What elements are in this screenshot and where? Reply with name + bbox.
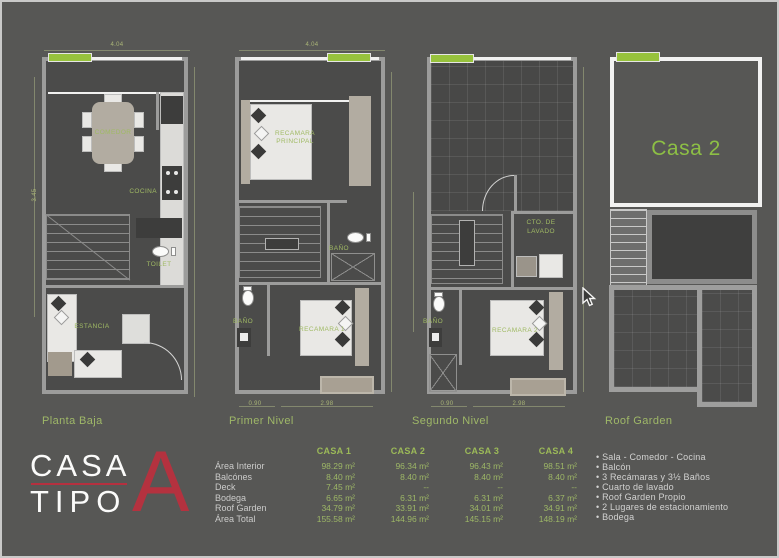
plan-primer-nivel: 4.04 RECAMARA PRINCIPAL BAÑO BAÑO: [227, 42, 395, 414]
interior-wall: [511, 211, 514, 287]
toilet-icon: [433, 296, 445, 312]
row-label: Área Interior: [215, 461, 305, 472]
table-cell: 145.15 m²: [453, 514, 527, 525]
open-roof-outline: Casa 2: [610, 57, 762, 207]
table-cell: --: [379, 482, 453, 493]
column-header: CASA 3: [453, 446, 527, 461]
staircase: [610, 209, 647, 287]
table-cell: 96.34 m²: [379, 461, 453, 472]
room-label-bano: BAÑO: [319, 245, 359, 253]
interior-wall: [156, 92, 159, 130]
logo-word-tipo: TIPO: [30, 486, 230, 517]
toilet-icon: [152, 246, 169, 257]
room-label-bano: BAÑO: [233, 318, 269, 326]
plan-roof-garden: Casa 2: [600, 42, 770, 414]
feature-item: Balcón: [596, 462, 728, 472]
roof-slab: [647, 210, 757, 284]
balcony-marker: [48, 53, 92, 62]
table-cell: 34.91 m²: [527, 503, 601, 514]
interior-wall: [511, 211, 577, 214]
dryer: [539, 254, 563, 278]
table-cell: --: [453, 482, 527, 493]
shower: [429, 354, 457, 392]
stair-rail: [459, 220, 475, 266]
toilet-tank: [434, 292, 443, 297]
plan-title-roof-garden: Roof Garden: [605, 415, 672, 427]
row-label: Roof Garden: [215, 503, 305, 514]
table-cell: 8.40 m²: [453, 472, 527, 483]
balcony-marker: [616, 52, 660, 62]
room-label-toilet: TOILET: [136, 261, 182, 269]
dimension-label: 0.90: [425, 401, 469, 407]
table-cell: 34.01 m²: [453, 503, 527, 514]
table-cell: 8.40 m²: [527, 472, 601, 483]
plan-segundo-nivel: CTO. DE LAVADO BAÑO RECAMARA 2 0.90 2.98: [419, 42, 587, 414]
row-label: Deck: [215, 482, 305, 493]
dimension-label: 0.90: [233, 401, 277, 407]
balcony-marker: [327, 53, 371, 62]
area-table: CASA 1 CASA 2 CASA 3 CASA 4 Área Interio…: [215, 446, 601, 524]
dimension-label: 2.98: [473, 401, 565, 407]
column-header: CASA 1: [305, 446, 379, 461]
dimension-label: 2.98: [281, 401, 373, 407]
dimension-label: 3.45: [32, 183, 38, 207]
toilet-icon: [242, 290, 254, 306]
interior-wall: [459, 287, 462, 365]
sofa: [74, 350, 122, 378]
table-cell: 98.51 m²: [527, 461, 601, 472]
room-label-estancia: ESTANCIA: [64, 323, 120, 331]
column-header: CASA 2: [379, 446, 453, 461]
roof-garden-deck-extension: [697, 285, 757, 407]
headboard: [549, 292, 563, 370]
headboard: [241, 100, 250, 184]
column-header: CASA 4: [527, 446, 601, 461]
room-label-recamara2: RECAMARA 2: [479, 327, 551, 335]
row-label: Balcónes: [215, 472, 305, 483]
toilet-tank: [243, 286, 252, 291]
table-cell: 6.31 m²: [453, 493, 527, 504]
table-cell: 155.58 m²: [305, 514, 379, 525]
row-label: Bodega: [215, 493, 305, 504]
mouse-cursor: [582, 287, 597, 308]
dimension-line: [194, 67, 195, 397]
dimension-line: [44, 50, 190, 51]
dimension-label: 4.04: [44, 42, 190, 48]
table-cell: 6.31 m²: [379, 493, 453, 504]
room-label-bano: BAÑO: [423, 318, 459, 326]
dimension-line: [583, 67, 584, 392]
chair: [134, 136, 144, 152]
feature-item: Bodega: [596, 512, 728, 522]
sink-basin: [432, 333, 439, 341]
chair: [134, 112, 144, 128]
table-cell: 8.40 m²: [379, 472, 453, 483]
table-cell: 148.19 m²: [527, 514, 601, 525]
table-cell: 7.45 m²: [305, 482, 379, 493]
dimension-line: [413, 192, 414, 332]
dimension-line: [391, 72, 392, 392]
plan-title-segundo-nivel: Segundo Nivel: [412, 415, 489, 427]
balcony-floor: [510, 378, 566, 396]
interior-wall: [327, 200, 330, 282]
chair: [82, 112, 92, 128]
toilet-tank: [366, 233, 371, 242]
logo: CASA TIPO A: [30, 450, 230, 550]
table-cell: 33.91 m²: [379, 503, 453, 514]
interior-wall: [241, 100, 363, 102]
burner: [166, 190, 170, 194]
room-label-cto-lavado: CTO. DE LAVADO: [515, 218, 567, 236]
feature-item: Cuarto de lavado: [596, 482, 728, 492]
table-cell: 98.29 m²: [305, 461, 379, 472]
stove: [162, 166, 182, 200]
table-cell: 96.43 m²: [453, 461, 527, 472]
burner: [174, 171, 178, 175]
floorplan-sheet: 4.04 3.45 COMEDOR COCINA TOIL: [0, 0, 779, 558]
refrigerator: [161, 96, 183, 124]
room-label-recamara1: RECAMARA 1: [287, 326, 357, 334]
rug: [48, 352, 72, 376]
interior-wall: [235, 200, 347, 203]
burner: [166, 171, 170, 175]
room-label-recamara-principal: RECAMARA PRINCIPAL: [263, 130, 327, 146]
table-cell: 8.40 m²: [305, 472, 379, 483]
feature-item: 2 Lugares de estacionamiento: [596, 502, 728, 512]
logo-word-casa: CASA: [30, 450, 230, 481]
interior-wall: [427, 287, 577, 290]
plan-title-planta-baja: Planta Baja: [42, 415, 103, 427]
sink-basin: [240, 333, 248, 341]
toilet-tank: [171, 247, 176, 256]
table-corner: [215, 446, 305, 461]
interior-wall: [235, 282, 385, 285]
logo-letter-a: A: [132, 446, 189, 518]
table-cell: 6.37 m²: [527, 493, 601, 504]
interior-wall: [514, 175, 517, 213]
feature-item: Sala - Comedor - Cocina: [596, 452, 728, 462]
stair-rail: [265, 238, 299, 250]
interior-wall: [42, 285, 188, 288]
plan-planta-baja: 4.04 3.45 COMEDOR COCINA TOIL: [32, 42, 197, 414]
dimension-label: 4.04: [239, 42, 385, 48]
table-cell: 34.79 m²: [305, 503, 379, 514]
row-label: Área Total: [215, 514, 305, 525]
shower: [331, 253, 375, 281]
balcony-marker: [430, 54, 474, 63]
room-label-comedor: COMEDOR: [78, 129, 148, 137]
closet: [349, 96, 371, 186]
table-cell: 6.65 m²: [305, 493, 379, 504]
burner: [174, 190, 178, 194]
table-cell: --: [527, 482, 601, 493]
plan-title-primer-nivel: Primer Nivel: [229, 415, 294, 427]
feature-item: Roof Garden Propio: [596, 492, 728, 502]
headboard: [355, 288, 369, 366]
feature-list: Sala - Comedor - Cocina Balcón 3 Recámar…: [596, 452, 728, 522]
dimension-line: [239, 50, 385, 51]
balcony-floor: [320, 376, 374, 394]
chair: [82, 136, 92, 152]
feature-item: 3 Recámaras y 3½ Baños: [596, 472, 728, 482]
table-cell: 144.96 m²: [379, 514, 453, 525]
room-label-cocina: COCINA: [102, 188, 157, 196]
room-label-casa2: Casa 2: [651, 137, 721, 161]
side-table: [122, 314, 150, 344]
toilet-icon: [347, 232, 364, 243]
bath-counter: [136, 218, 182, 238]
washer: [516, 256, 537, 277]
